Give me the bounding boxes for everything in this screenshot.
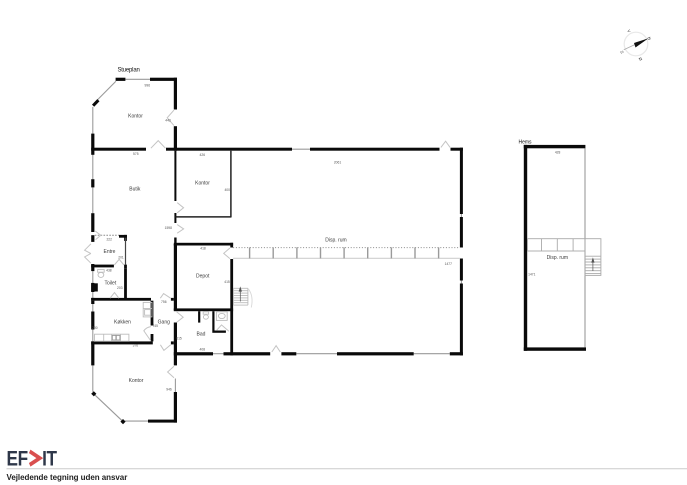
svg-text:Hems: Hems (519, 140, 533, 146)
svg-text:Depot: Depot (196, 274, 210, 280)
svg-text:Køkken: Køkken (114, 320, 131, 326)
svg-text:Vejledende tegning uden ansvar: Vejledende tegning uden ansvar (7, 473, 128, 482)
svg-text:Stueplan: Stueplan (118, 68, 140, 74)
svg-text:Kontor: Kontor (128, 114, 143, 120)
svg-text:438: 438 (106, 269, 112, 273)
svg-text:222: 222 (106, 237, 112, 241)
svg-text:201: 201 (118, 255, 124, 259)
svg-text:IT: IT (42, 447, 57, 471)
svg-text:290: 290 (92, 326, 98, 330)
svg-text:946: 946 (166, 388, 172, 392)
svg-text:Kontor: Kontor (195, 180, 210, 186)
svg-text:2061: 2061 (334, 161, 342, 165)
svg-text:615: 615 (176, 336, 182, 340)
svg-text:428: 428 (555, 151, 561, 155)
svg-text:203: 203 (117, 286, 123, 290)
svg-text:575: 575 (133, 152, 139, 156)
svg-text:996: 996 (145, 83, 151, 87)
svg-text:745: 745 (152, 324, 158, 328)
svg-text:Butik: Butik (129, 186, 141, 192)
svg-text:EF: EF (7, 447, 29, 471)
svg-text:376: 376 (133, 344, 139, 348)
svg-text:Disp. rum: Disp. rum (547, 255, 568, 261)
svg-text:1598: 1598 (165, 226, 173, 230)
svg-text:Gang: Gang (158, 319, 170, 325)
svg-text:Toilet: Toilet (105, 281, 117, 287)
svg-text:Disp. rum: Disp. rum (325, 237, 346, 243)
svg-text:756: 756 (161, 300, 167, 304)
svg-text:1471: 1471 (528, 273, 536, 277)
svg-text:426: 426 (200, 153, 206, 157)
svg-text:1477: 1477 (445, 262, 453, 266)
svg-text:408: 408 (200, 348, 206, 352)
svg-text:418: 418 (200, 246, 206, 250)
svg-text:443: 443 (165, 119, 171, 123)
svg-text:400: 400 (224, 188, 230, 192)
svg-text:Entre: Entre (104, 249, 116, 255)
svg-text:415: 415 (224, 280, 230, 284)
svg-text:Kontor: Kontor (129, 378, 144, 384)
svg-text:Bad: Bad (197, 331, 206, 337)
